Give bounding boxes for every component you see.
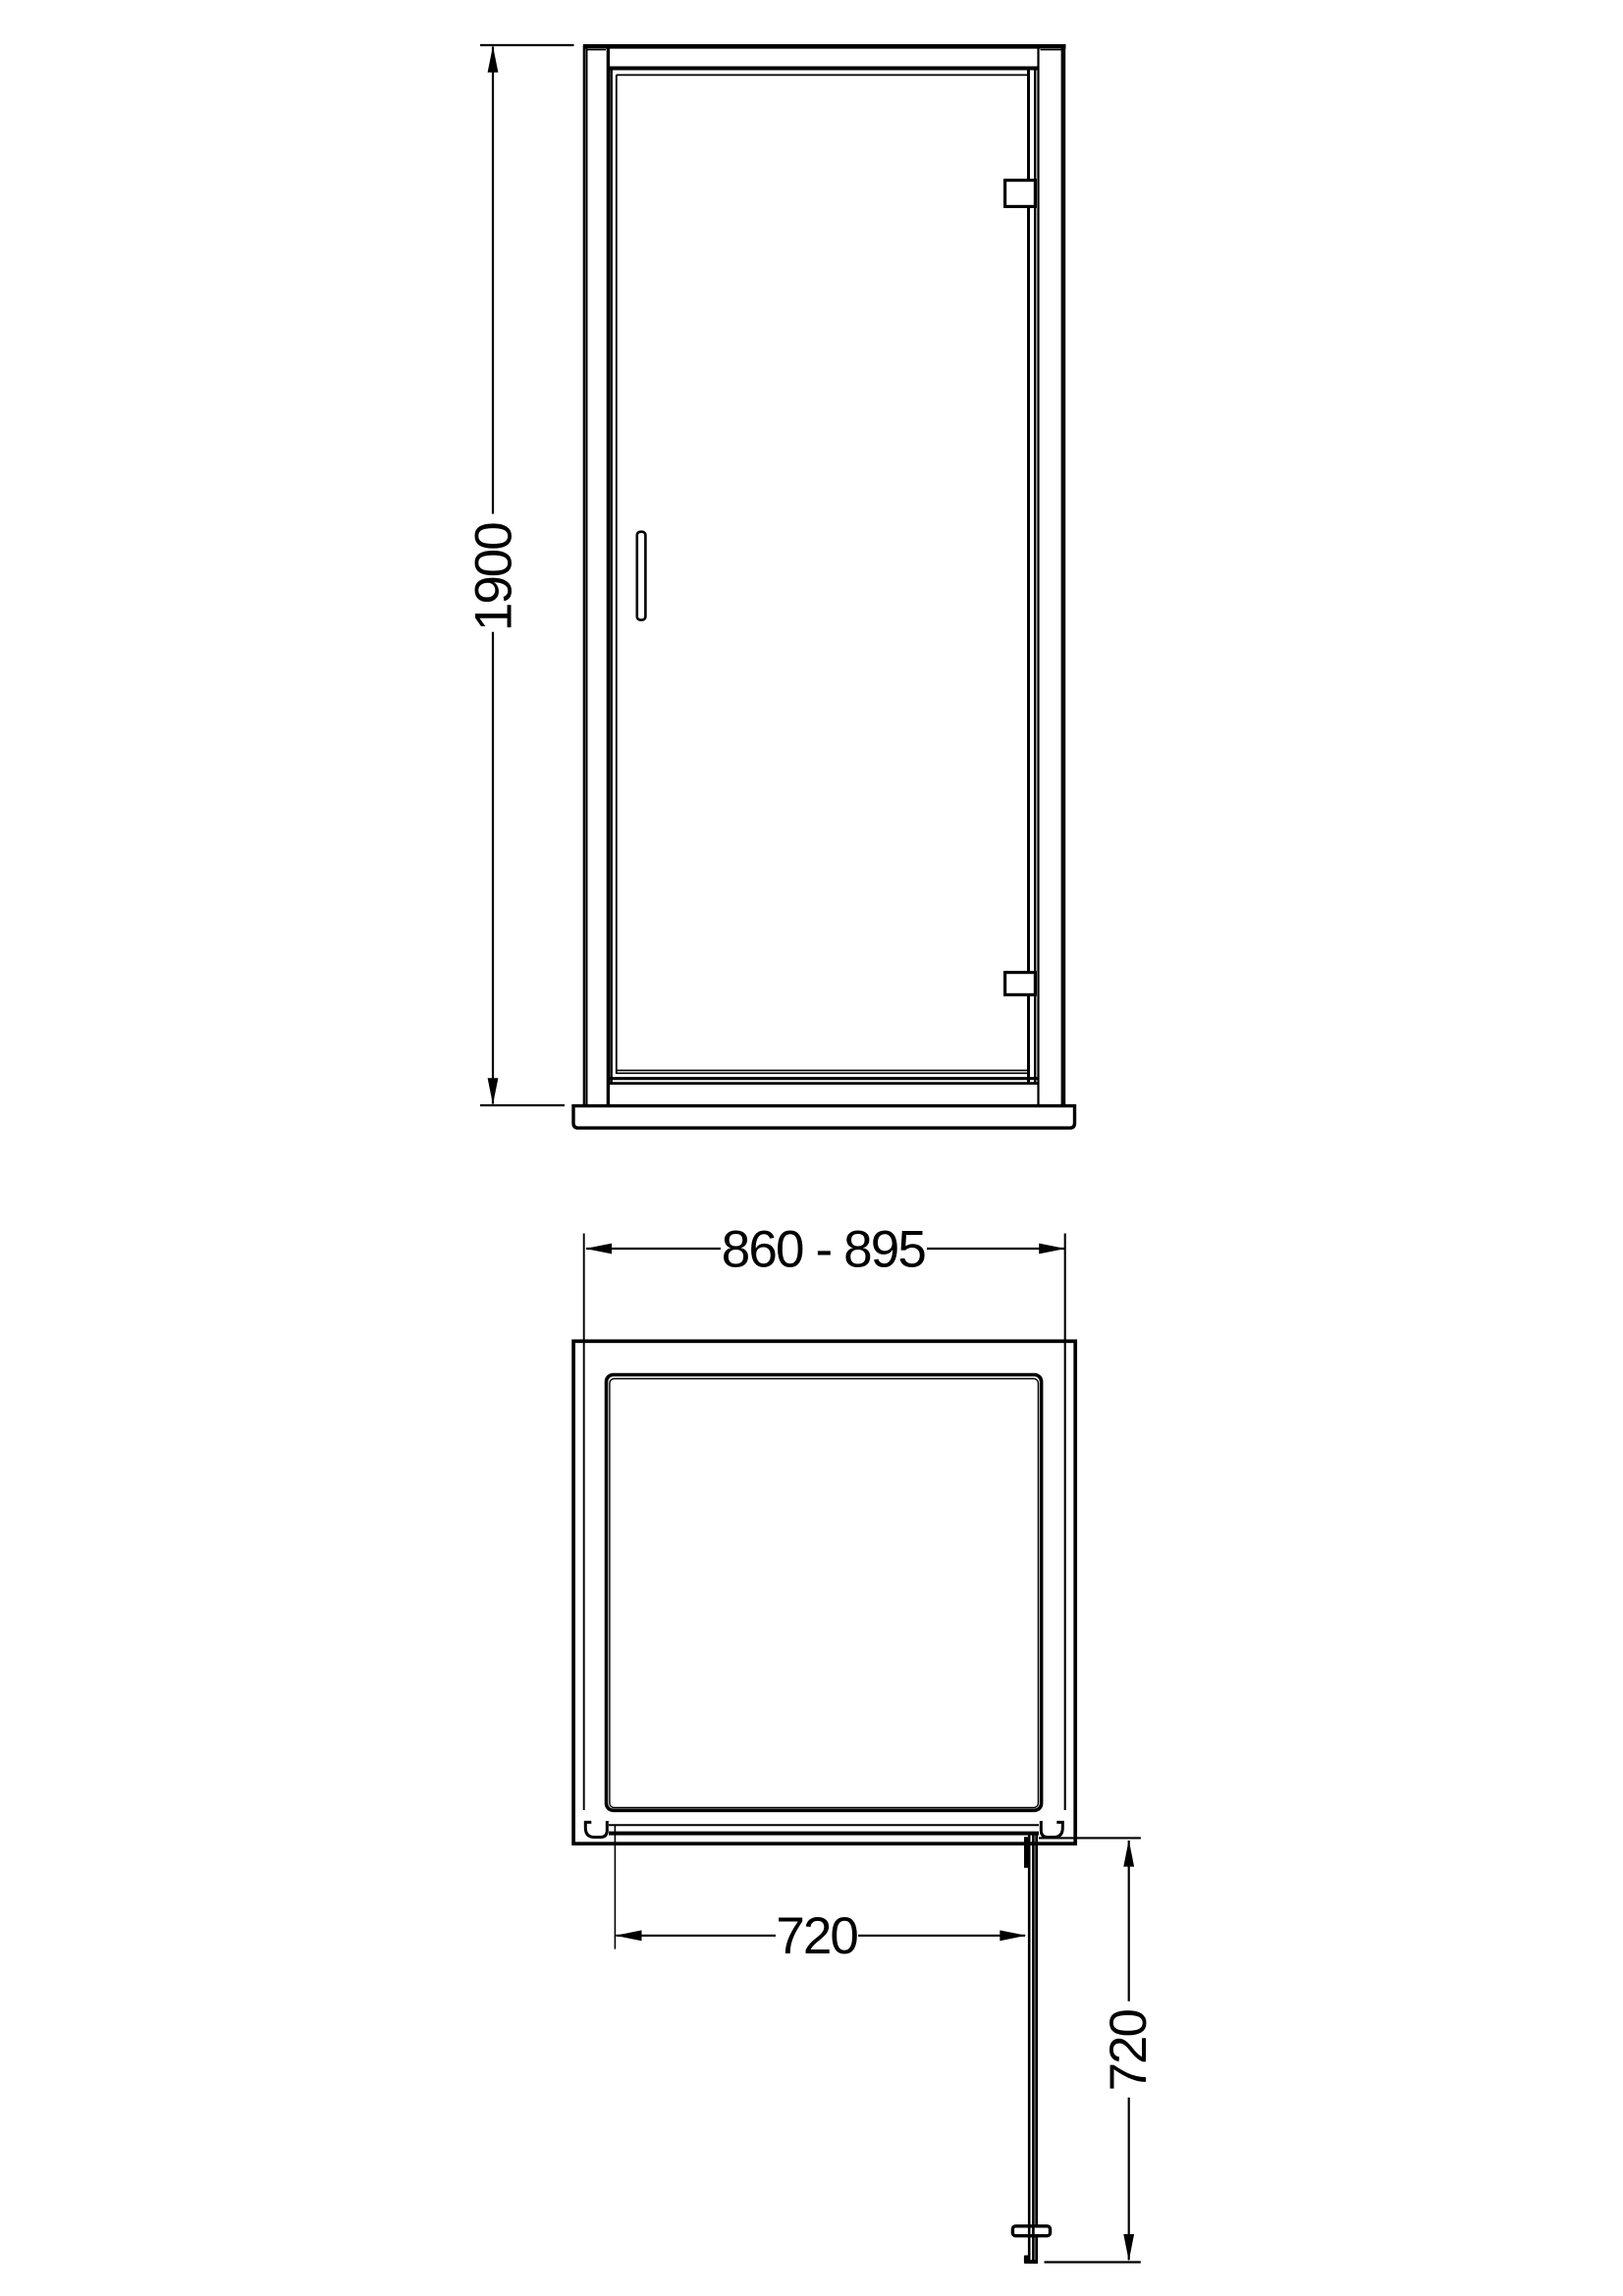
svg-text:860 - 895: 860 - 895	[722, 1221, 926, 1279]
svg-text:1900: 1900	[465, 523, 523, 631]
svg-text:720: 720	[1100, 2009, 1158, 2091]
svg-text:720: 720	[776, 1907, 857, 1965]
